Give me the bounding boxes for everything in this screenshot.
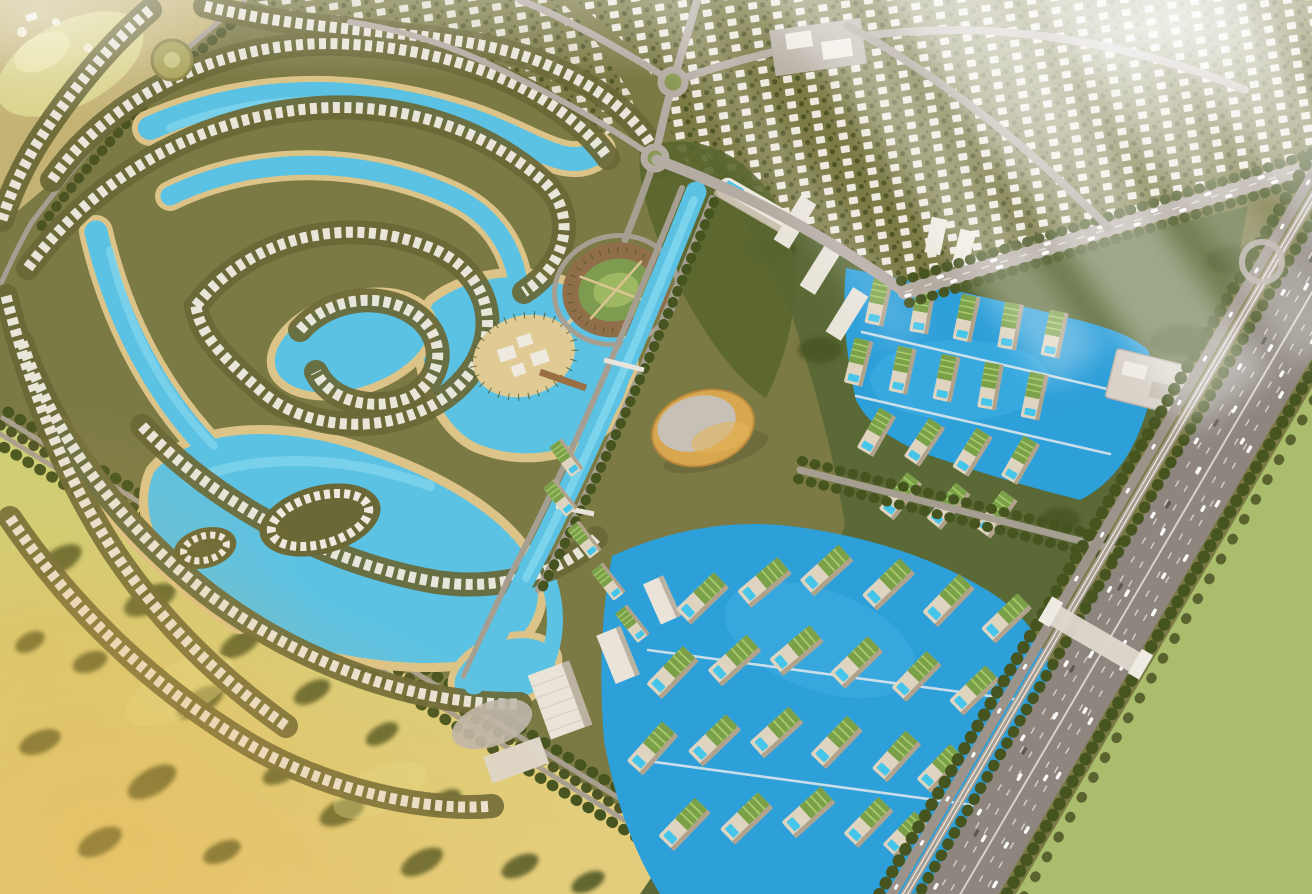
- tree-clump: [798, 337, 842, 363]
- scene-canvas: [0, 0, 1312, 894]
- masterplan-aerial-render: [0, 0, 1312, 894]
- top-haze: [0, 0, 1312, 80]
